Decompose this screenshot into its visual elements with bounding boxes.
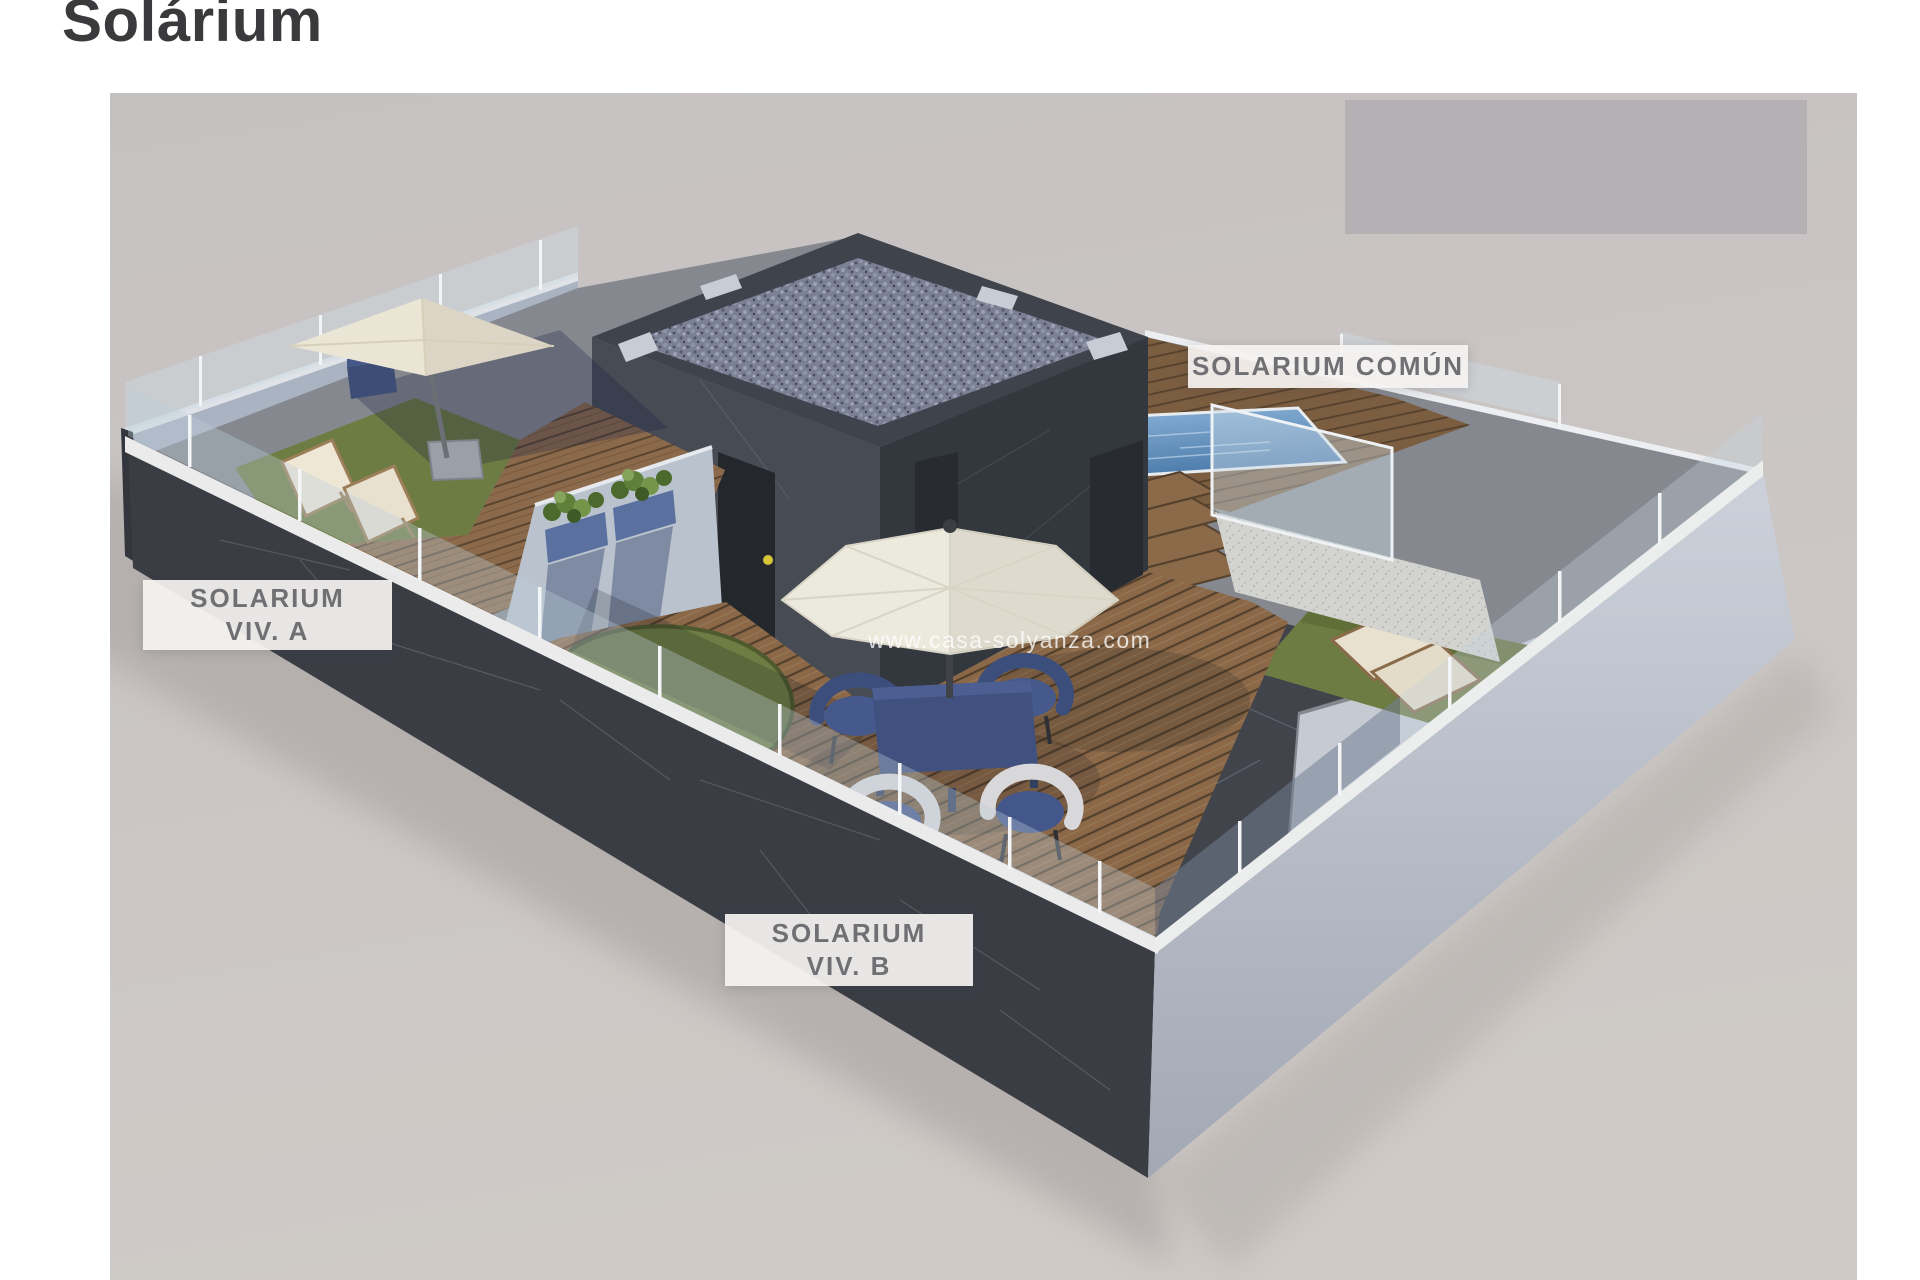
solarium-viv-b-label: SOLARIUM VIV. B <box>725 914 973 986</box>
solarium-viv-a-label: SOLARIUM VIV. A <box>143 580 392 650</box>
parasol-planter <box>428 440 483 480</box>
watermark: www.casa-solyanza.com <box>868 627 1151 654</box>
brochure-page: Solárium <box>0 0 1920 1280</box>
label-line: VIV. B <box>725 950 973 983</box>
door-handle <box>763 555 773 565</box>
label-line: SOLARIUM <box>143 582 392 615</box>
solarium-comun-label: SOLARIUM COMÚN <box>1188 345 1468 388</box>
neighbor-roof-panel <box>1345 100 1807 234</box>
label-line: SOLARIUM COMÚN <box>1188 345 1468 388</box>
label-line: SOLARIUM <box>725 917 973 950</box>
label-line: VIV. A <box>143 615 392 648</box>
